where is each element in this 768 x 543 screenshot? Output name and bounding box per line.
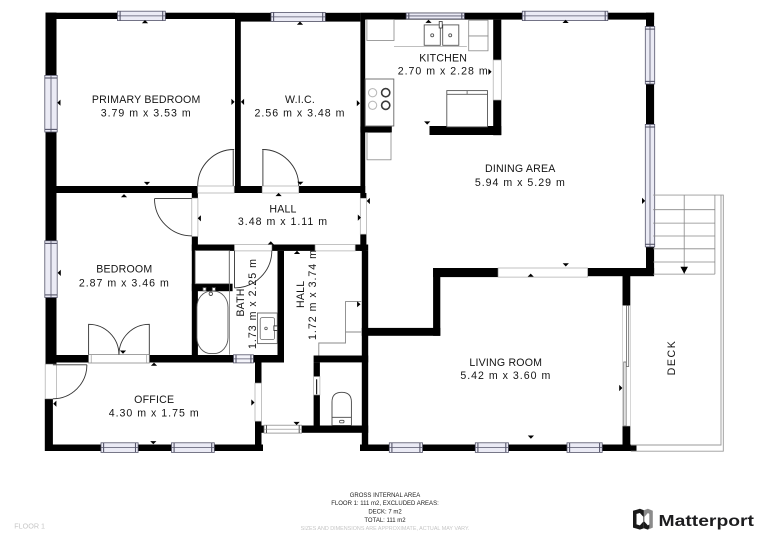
svg-text:2.56 m x 3.48 m: 2.56 m x 3.48 m [255,108,346,120]
svg-text:PRIMARY BEDROOM: PRIMARY BEDROOM [92,94,201,106]
svg-text:OFFICE: OFFICE [134,394,174,406]
svg-text:Matterport: Matterport [659,513,755,530]
svg-text:4.30 m x 1.75 m: 4.30 m x 1.75 m [109,408,200,420]
svg-text:DECK: 7 m2: DECK: 7 m2 [368,510,402,516]
svg-text:BATH: BATH [235,288,247,316]
svg-text:DINING AREA: DINING AREA [485,163,556,175]
svg-text:2.87 m x 3.46 m: 2.87 m x 3.46 m [79,278,170,290]
svg-text:2.70 m x 2.28 m: 2.70 m x 2.28 m [398,66,489,78]
svg-text:5.42 m x 3.60 m: 5.42 m x 3.60 m [460,370,551,382]
svg-text:3.79 m x 3.53 m: 3.79 m x 3.53 m [101,108,192,120]
svg-text:HALL: HALL [269,203,296,215]
svg-text:KITCHEN: KITCHEN [419,53,467,65]
svg-text:BEDROOM: BEDROOM [96,264,152,276]
svg-text:GROSS INTERNAL AREA: GROSS INTERNAL AREA [350,493,420,499]
svg-text:FLOOR 1: 111 m2, EXCLUDED AREA: FLOOR 1: 111 m2, EXCLUDED AREAS: [331,501,439,507]
svg-text:5.94 m x 5.29 m: 5.94 m x 5.29 m [475,177,566,189]
svg-text:1.72 m x 3.74 m: 1.72 m x 3.74 m [307,249,319,340]
svg-text:TOTAL: 111 m2: TOTAL: 111 m2 [364,518,406,524]
svg-text:LIVING ROOM: LIVING ROOM [469,357,542,369]
svg-text:3.48 m x 1.11 m: 3.48 m x 1.11 m [238,216,328,228]
svg-text:1.73 m x 2.25 m: 1.73 m x 2.25 m [247,258,259,349]
svg-text:SIZES AND DIMENSIONS ARE APPRO: SIZES AND DIMENSIONS ARE APPROXIMATE, AC… [301,526,470,532]
svg-text:DECK: DECK [666,340,678,376]
svg-text:W.I.C.: W.I.C. [285,94,315,106]
svg-text:HALL: HALL [295,281,307,308]
svg-text:FLOOR 1: FLOOR 1 [14,522,45,531]
